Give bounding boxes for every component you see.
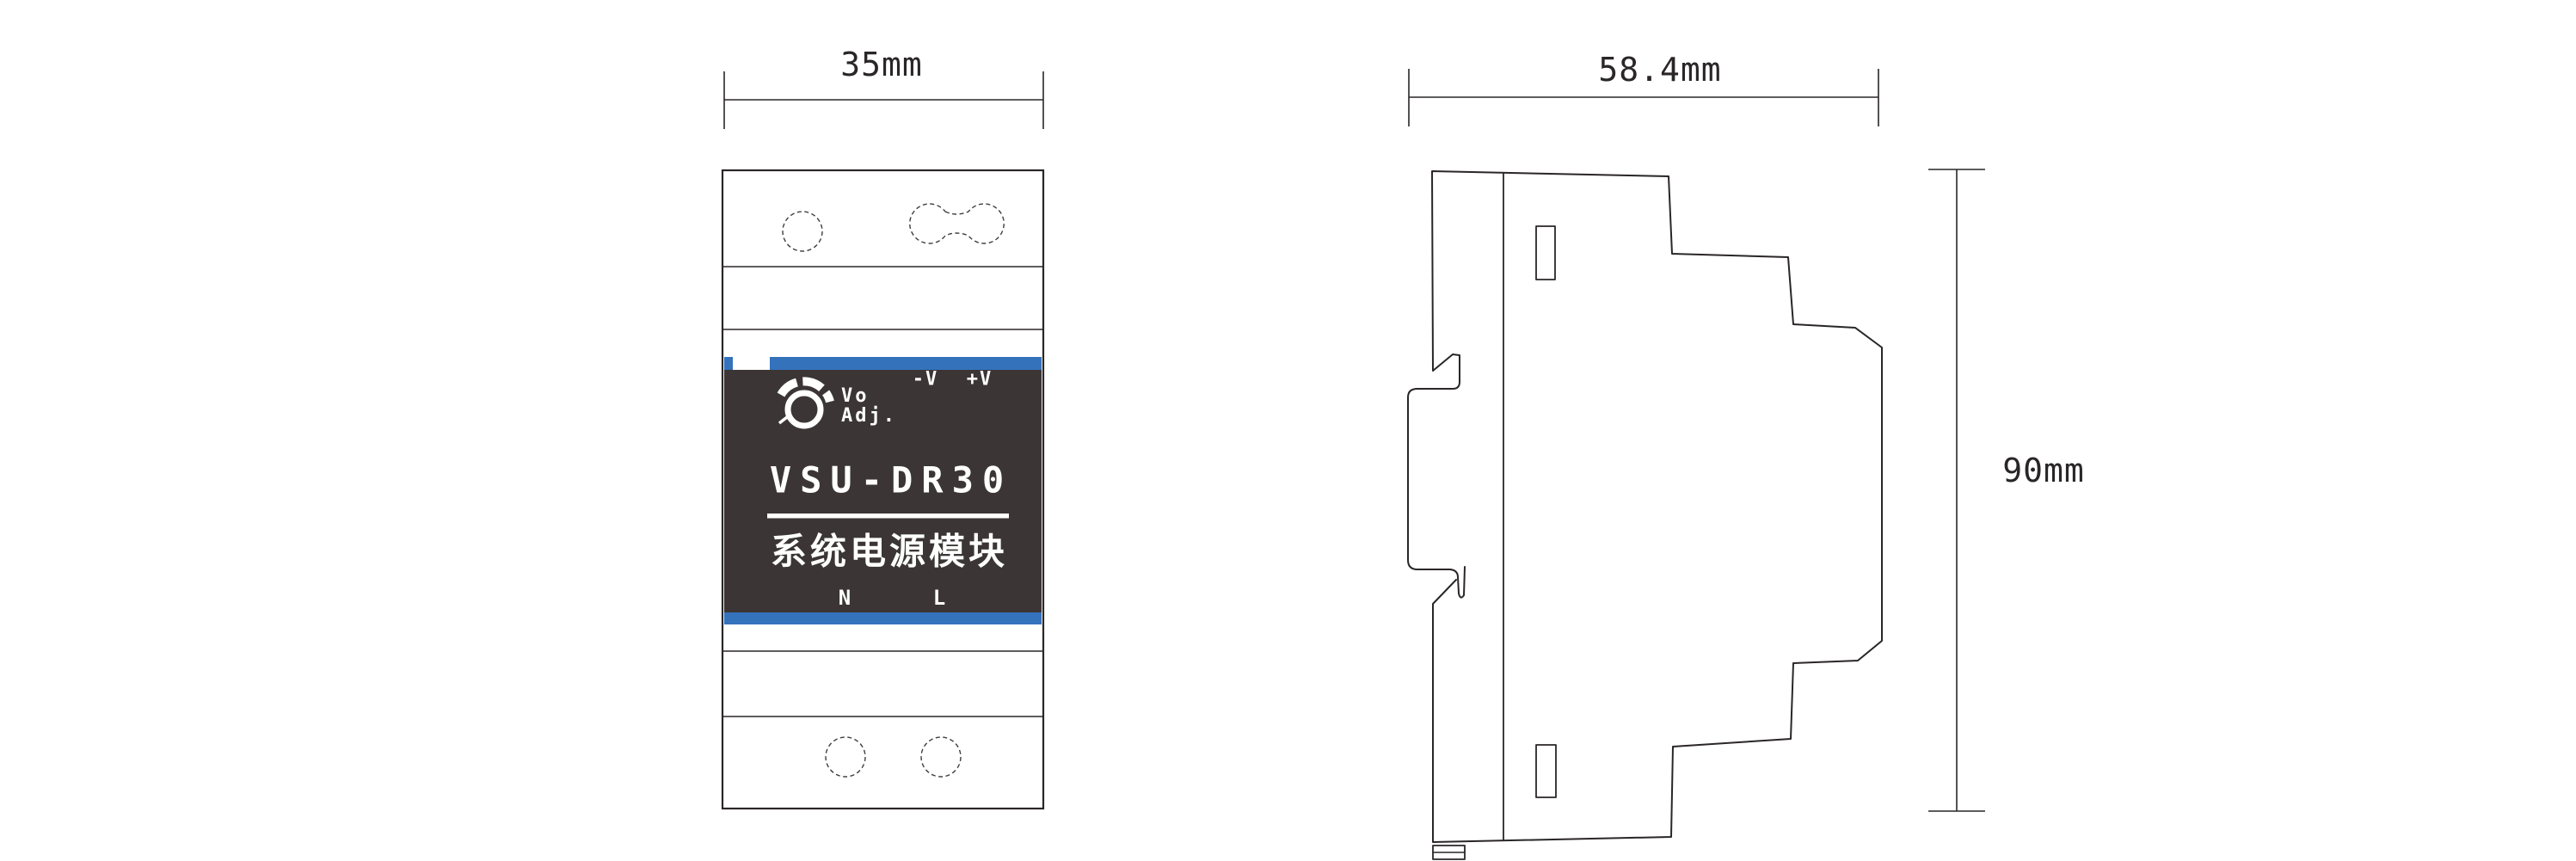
label-divider-rule (767, 514, 1009, 519)
dim-label-height: 90mm (2002, 452, 2085, 489)
model-number: VSU-DR30 (770, 459, 1012, 501)
side-view-outline (1432, 171, 1882, 842)
dimension-drawing: 35mm 58.4mm 90mm Vo Adj. -V +V VSU-DR30 … (0, 0, 2576, 861)
dim-90mm (1928, 169, 1985, 811)
terminal-label-n: N (839, 586, 851, 610)
knob-label-vo: Vo (841, 385, 870, 407)
module-subtitle: 系统电源模块 (771, 523, 1008, 575)
side-view (1408, 171, 1882, 859)
dogbone-slot-icon (910, 204, 1004, 243)
side-slot-top (1536, 226, 1555, 280)
terminal-label-neg-v: -V (913, 369, 939, 391)
din-clip-bracket (1408, 354, 1465, 598)
label-stripe-notch (733, 356, 770, 371)
dim-label-width: 35mm (840, 46, 923, 83)
side-slot-bottom (1536, 745, 1556, 797)
knob-label-adj: Adj. (841, 405, 897, 427)
label-bottom-blue-stripe (724, 612, 1042, 624)
top-terminal-hole-icon (783, 212, 822, 251)
bottom-terminal-hole-l-icon (921, 737, 961, 777)
bottom-terminal-hole-n-icon (826, 737, 865, 777)
dim-label-depth: 58.4mm (1598, 51, 1721, 89)
terminal-label-pos-v: +V (967, 369, 993, 391)
label-top-blue-stripe (724, 357, 1042, 370)
terminal-label-l: L (933, 586, 945, 610)
drawing-linework (0, 0, 2576, 861)
